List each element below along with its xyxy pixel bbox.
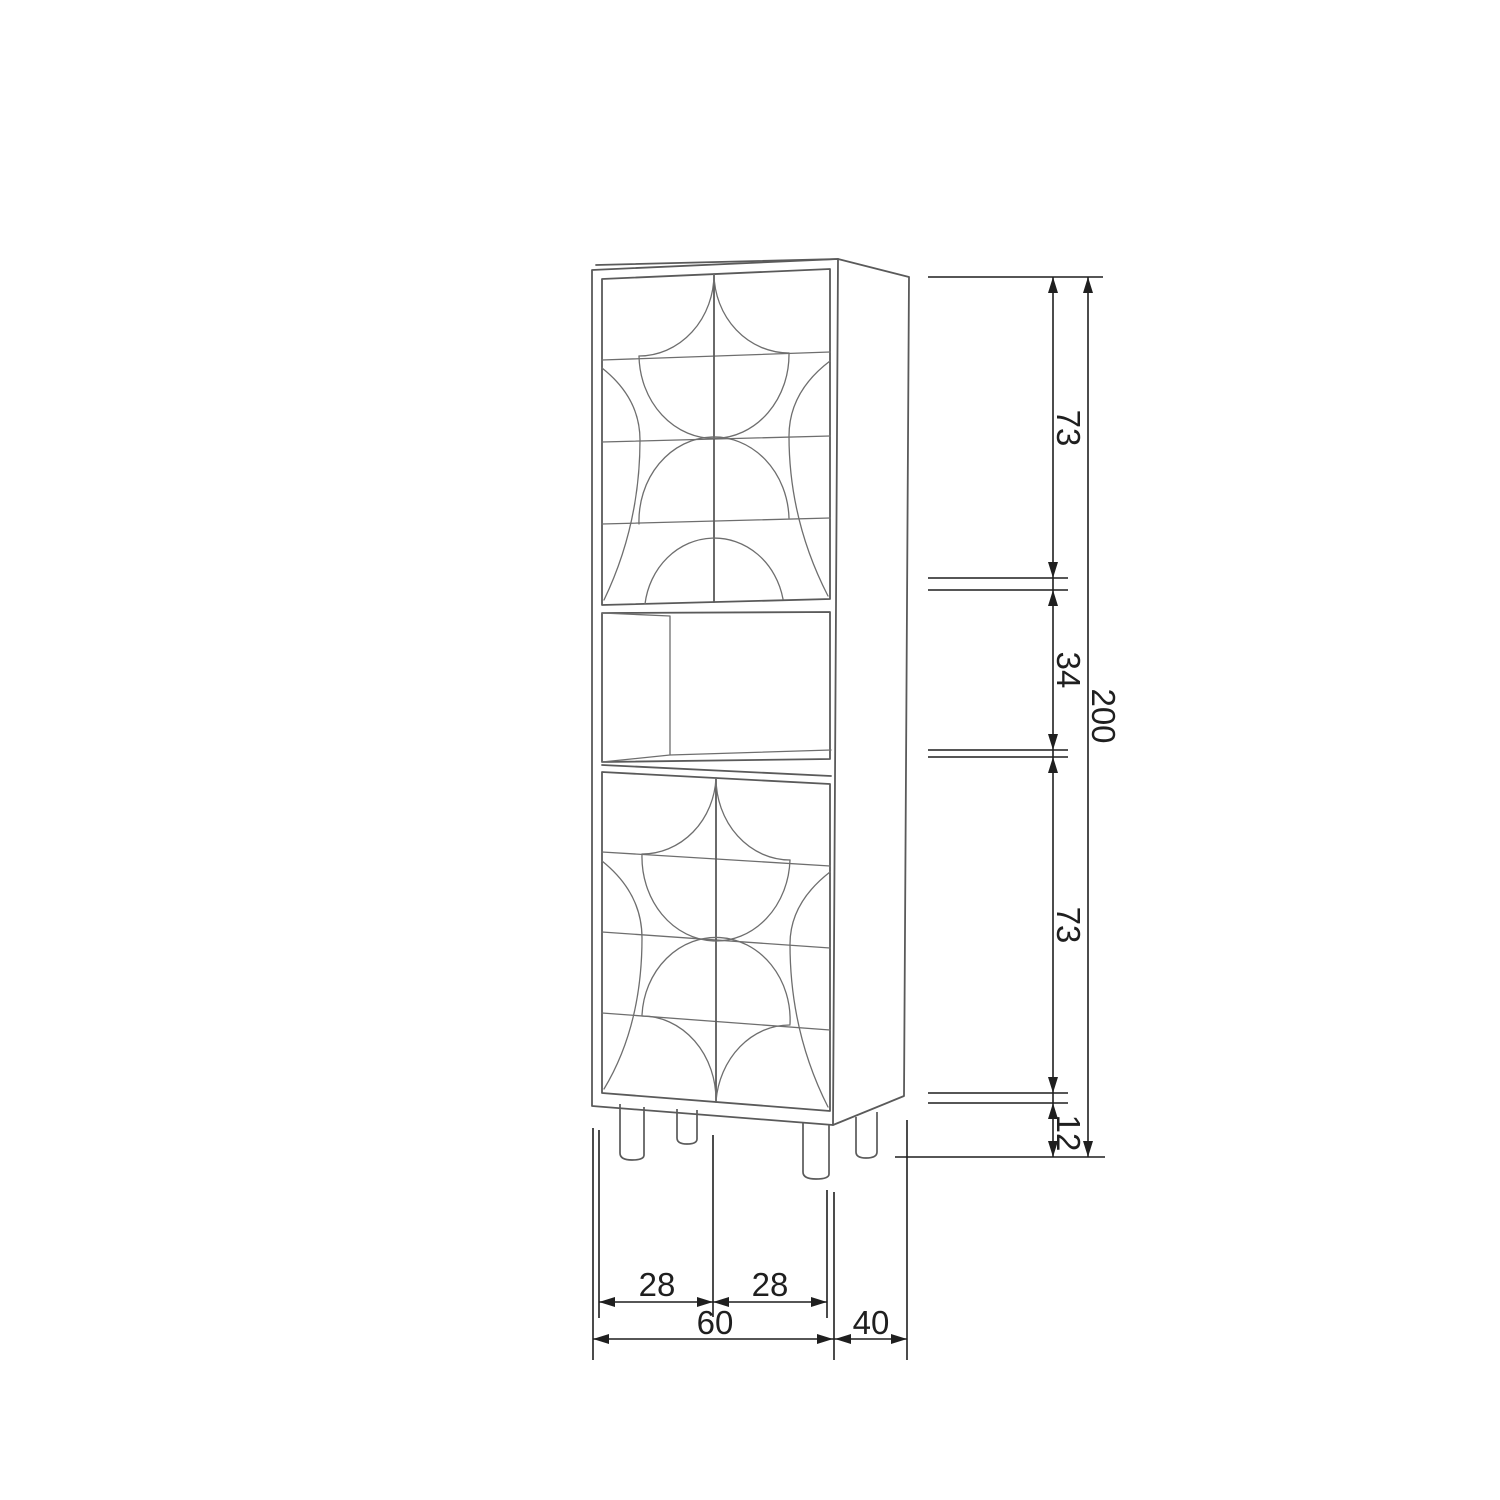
dim-label-leg-height: 12 bbox=[1050, 1115, 1087, 1152]
leg-front-left bbox=[620, 1104, 644, 1160]
cabinet-side-panel bbox=[833, 259, 909, 1125]
open-shelf-compartment bbox=[602, 612, 831, 776]
dim-label-depth: 40 bbox=[853, 1304, 890, 1341]
cabinet-outline bbox=[592, 259, 909, 1125]
opening-interior-lines bbox=[602, 613, 831, 762]
cabinet-legs bbox=[620, 1104, 877, 1179]
leg-front-right bbox=[803, 1122, 829, 1179]
dim-label-total-height: 200 bbox=[1085, 688, 1122, 743]
opening-frame bbox=[602, 612, 830, 762]
dim-label-left-door-width: 28 bbox=[639, 1266, 676, 1303]
dim-label-lower-door-height: 73 bbox=[1050, 907, 1087, 944]
upper-door bbox=[602, 269, 830, 605]
lower-door bbox=[602, 772, 830, 1111]
dim-label-right-door-width: 28 bbox=[752, 1266, 789, 1303]
dim-label-upper-door-height: 73 bbox=[1050, 410, 1087, 447]
cabinet-front-frame bbox=[592, 259, 838, 1125]
dim-label-total-width: 60 bbox=[697, 1304, 734, 1341]
drawing-canvas: 73 34 73 12 200 28 28 60 40 bbox=[0, 0, 1500, 1500]
dim-label-open-shelf-height: 34 bbox=[1050, 652, 1087, 689]
dimension-lines: 73 34 73 12 200 28 28 60 40 bbox=[593, 277, 1122, 1360]
upper-door-arc-pattern bbox=[602, 274, 830, 604]
cabinet-dimension-drawing: 73 34 73 12 200 28 28 60 40 bbox=[0, 0, 1500, 1500]
arrowheads bbox=[593, 277, 1093, 1344]
leg-back-right bbox=[856, 1112, 877, 1158]
